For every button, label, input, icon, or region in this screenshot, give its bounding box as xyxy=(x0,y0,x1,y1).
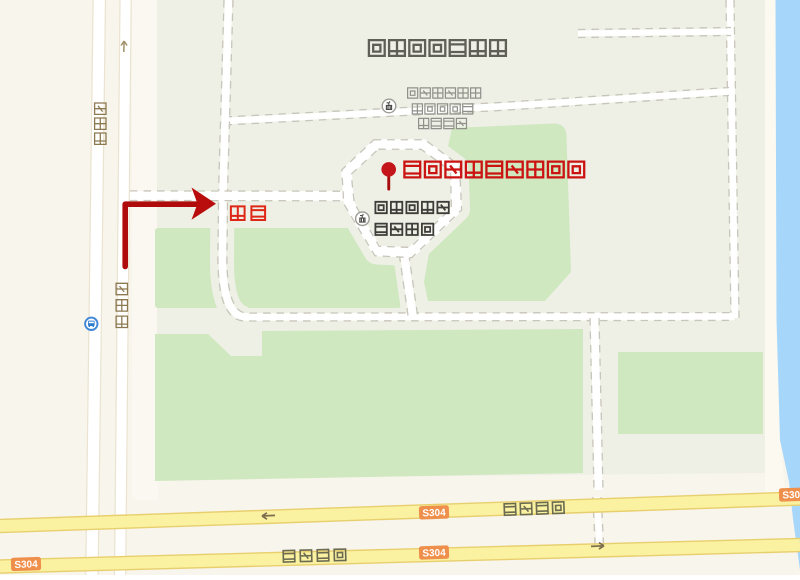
svg-text:S304: S304 xyxy=(14,559,38,571)
svg-text:S304: S304 xyxy=(422,548,446,560)
svg-text:S304: S304 xyxy=(782,490,800,502)
svg-text:S304: S304 xyxy=(422,508,446,520)
